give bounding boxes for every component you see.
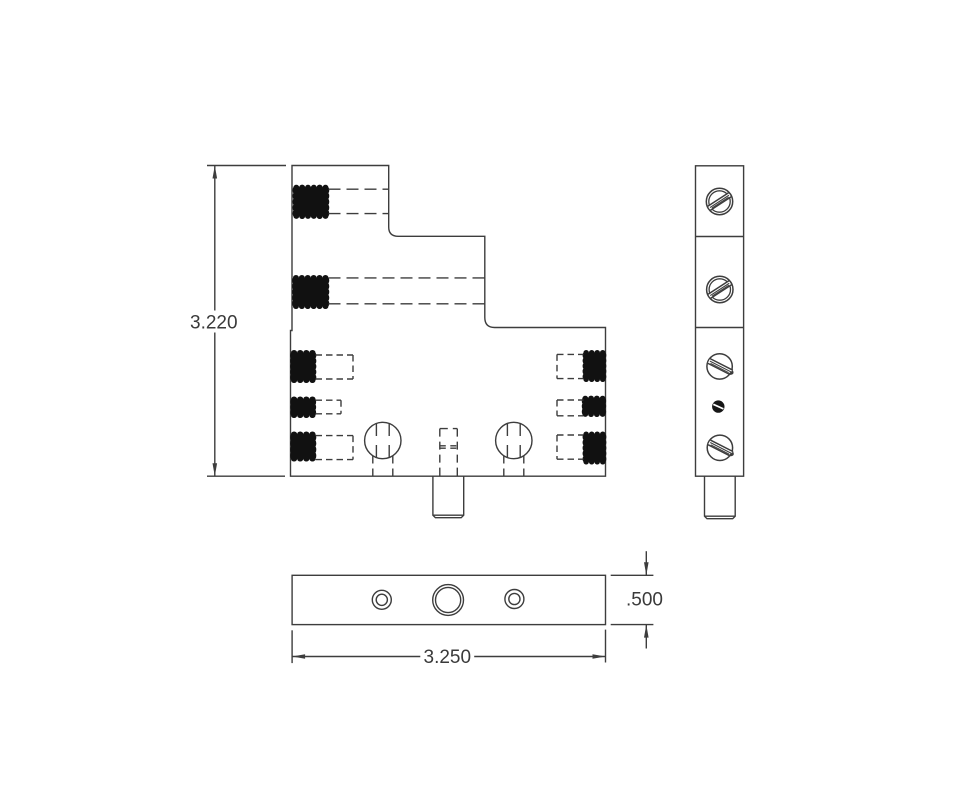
svg-text:3.250: 3.250	[424, 647, 472, 668]
svg-text:.500: .500	[626, 589, 663, 610]
svg-text:3.220: 3.220	[190, 312, 238, 333]
